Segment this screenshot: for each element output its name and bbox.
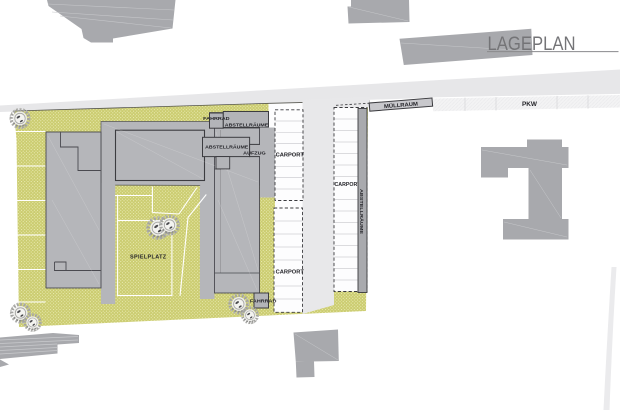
svg-text:FAHRRAD: FAHRRAD bbox=[203, 116, 230, 122]
svg-text:FAHRRAD: FAHRRAD bbox=[250, 298, 277, 304]
svg-text:CARPORT: CARPORT bbox=[276, 153, 304, 159]
svg-text:CARPORT: CARPORT bbox=[276, 270, 304, 276]
svg-text:PKW: PKW bbox=[522, 102, 537, 108]
svg-text:ABSTELLRÄUME: ABSTELLRÄUME bbox=[205, 144, 249, 151]
svg-text:SPIELPLATZ: SPIELPLATZ bbox=[130, 255, 167, 261]
svg-text:ABSTELLRÄUME: ABSTELLRÄUME bbox=[225, 121, 269, 128]
svg-text:CARPORT: CARPORT bbox=[335, 182, 361, 188]
svg-text:ABSTELLRÄUME: ABSTELLRÄUME bbox=[358, 189, 365, 235]
svg-text:AUFZUG: AUFZUG bbox=[243, 151, 266, 157]
